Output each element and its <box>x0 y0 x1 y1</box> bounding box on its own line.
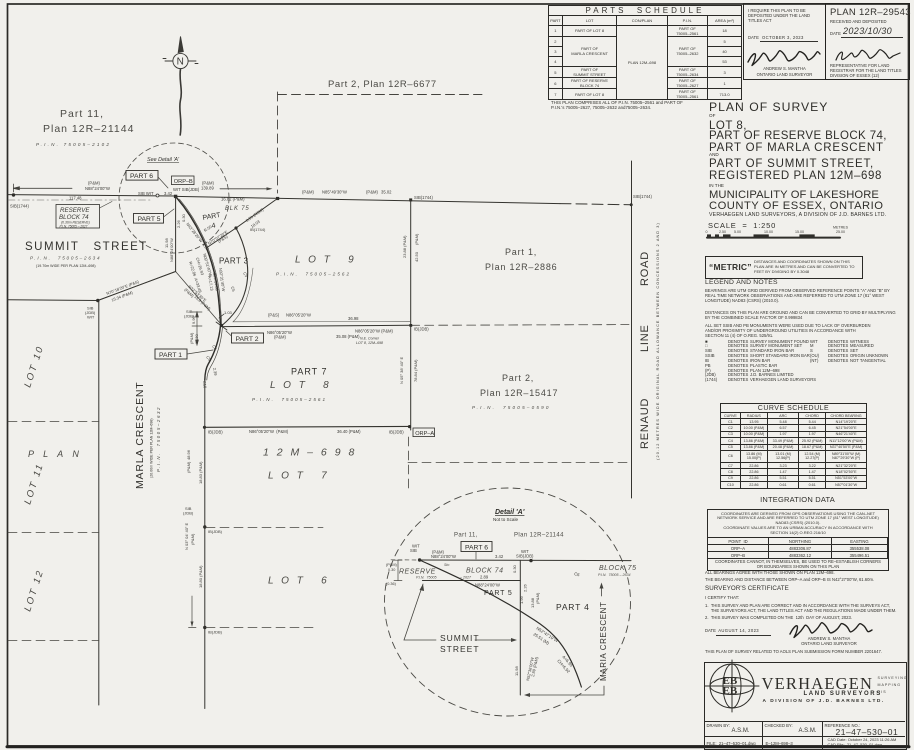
svg-text:MARLA CRESCENT: MARLA CRESCENT <box>134 382 146 489</box>
svg-text:(P&M): (P&M) <box>366 189 378 194</box>
svg-text:PART 4: PART 4 <box>556 602 590 612</box>
svg-text:LINE: LINE <box>639 324 651 352</box>
svg-text:23.88 (P&M): 23.88 (P&M) <box>402 235 407 258</box>
svg-text:SIB(1744): SIB(1744) <box>633 194 652 199</box>
svg-text:L O T 8: L O T 8 <box>270 380 331 391</box>
svg-text:11.30: 11.30 <box>194 334 199 344</box>
svg-text:18.83 (P&M): 18.83 (P&M) <box>198 461 203 484</box>
svg-text:METRES: METRES <box>833 226 849 230</box>
svg-text:PART 7: PART 7 <box>291 367 328 377</box>
svg-text:36.40 (P&M): 36.40 (P&M) <box>337 429 361 434</box>
svg-text:(P&S): (P&S) <box>268 312 280 317</box>
svg-text:1 2 M – 6 9 8: 1 2 M – 6 9 8 <box>263 447 357 459</box>
svg-text:(20.00m WIDE PER PLAN 12M–698): (20.00m WIDE PER PLAN 12M–698) <box>150 418 154 478</box>
svg-text:IB(JDB): IB(JDB) <box>208 629 223 634</box>
svg-text:78.84 (P&M): 78.84 (P&M) <box>413 359 418 382</box>
svg-text:11.98: 11.98 <box>514 666 519 676</box>
svg-text:C5: C5 <box>230 286 237 293</box>
svg-text:IB(1744): IB(1744) <box>250 227 266 232</box>
svg-text:PART 5: PART 5 <box>138 216 161 223</box>
svg-text:1.99: 1.99 <box>519 595 524 604</box>
svg-text:(0.36): (0.36) <box>386 582 397 586</box>
svg-text:PART 6: PART 6 <box>130 173 153 180</box>
svg-text:LOT 11: LOT 11 <box>22 462 46 506</box>
svg-text:SIB(1744): SIB(1744) <box>10 204 29 209</box>
svg-text:(P&M): (P&M) <box>186 461 191 473</box>
svg-text:ORP–B: ORP–B <box>174 179 193 185</box>
svg-text:Part 11,: Part 11, <box>454 533 478 539</box>
svg-text:L O T 6: L O T 6 <box>268 576 329 587</box>
svg-text:3.42: 3.42 <box>495 554 504 559</box>
svg-text:PART 6: PART 6 <box>465 545 488 552</box>
svg-text:N88°24'00"W: N88°24'00"W <box>475 583 500 588</box>
svg-text:SUMMIT: SUMMIT <box>440 633 480 643</box>
svg-text:2.89: 2.89 <box>480 574 489 579</box>
svg-text:P L A N: P L A N <box>28 449 82 459</box>
svg-text:SUMMIT STREET: SUMMIT STREET <box>25 241 148 253</box>
svg-text:2.50: 2.50 <box>719 230 726 234</box>
svg-text:N86°05'20"W (P&M): N86°05'20"W (P&M) <box>249 429 289 434</box>
svg-text:Plan 12R–15417: Plan 12R–15417 <box>480 388 558 398</box>
svg-text:N86°05'20"W: N86°05'20"W <box>286 312 311 317</box>
svg-text:15.00: 15.00 <box>795 230 804 234</box>
svg-text:P.I.N. 75005 – 2634: P.I.N. 75005 – 2634 <box>598 573 631 577</box>
svg-text:139.89: 139.89 <box>201 186 214 191</box>
svg-text:(20.12 METRES WIDE ORIGINAL RO: (20.12 METRES WIDE ORIGINAL ROAD ALLOWAN… <box>656 222 660 460</box>
svg-text:Part 2, Plan 12R–6677: Part 2, Plan 12R–6677 <box>328 79 437 90</box>
svg-text:LOT 10: LOT 10 <box>22 344 46 389</box>
svg-text:(P&M): (P&M) <box>274 335 286 340</box>
svg-text:(P&M): (P&M) <box>414 233 419 245</box>
svg-text:Plan 12R–21144: Plan 12R–21144 <box>43 123 134 135</box>
svg-text:36.98: 36.98 <box>348 316 359 321</box>
svg-text:WIT SIB(JDB): WIT SIB(JDB) <box>173 187 200 192</box>
svg-text:LOT 12: LOT 12 <box>22 568 46 613</box>
svg-text:P.I.N. 75005–2102: P.I.N. 75005–2102 <box>36 142 111 147</box>
svg-text:5.00: 5.00 <box>734 230 741 234</box>
svg-text:25.00: 25.00 <box>836 230 845 234</box>
svg-text:SIB WIT: SIB WIT <box>138 191 154 196</box>
svg-text:(19.70m WIDE PER PLAN 12M–698): (19.70m WIDE PER PLAN 12M–698) <box>36 264 96 268</box>
svg-text:117.48: 117.48 <box>69 196 82 201</box>
svg-text:P.I.N. 75005–2634: P.I.N. 75005–2634 <box>30 255 101 260</box>
svg-text:N88°24'00"W: N88°24'00"W <box>169 238 174 262</box>
svg-text:48.96: 48.96 <box>186 449 191 460</box>
svg-text:RESERVE: RESERVE <box>399 569 436 576</box>
svg-text:N85°49'30"W: N85°49'30"W <box>322 189 347 194</box>
svg-text:L O T 9: L O T 9 <box>295 255 356 266</box>
svg-text:N: N <box>177 57 184 68</box>
svg-text:3.42: 3.42 <box>164 191 173 196</box>
svg-text:Part 11,: Part 11, <box>60 108 104 120</box>
svg-text:C6: C6 <box>574 571 581 577</box>
svg-text:C5: C5 <box>242 271 249 279</box>
svg-text:BLOCK 75: BLOCK 75 <box>599 565 636 572</box>
svg-text:P.I.N. 75005–2562: P.I.N. 75005–2562 <box>276 272 351 277</box>
svg-text:0: 0 <box>706 230 708 234</box>
svg-text:4: 4 <box>211 222 216 230</box>
svg-text:2.26: 2.26 <box>523 583 528 592</box>
svg-text:0.30: 0.30 <box>388 568 395 572</box>
svg-text:(P&M): (P&M) <box>535 592 540 604</box>
svg-text:(JDB): (JDB) <box>183 511 194 516</box>
svg-text:Plan 12R–21144: Plan 12R–21144 <box>514 533 564 539</box>
svg-text:35.08 (P&M): 35.08 (P&M) <box>336 334 360 339</box>
svg-text:42.50: 42.50 <box>414 251 419 262</box>
svg-text:(P&M): (P&M) <box>88 181 100 186</box>
svg-text:10.00: 10.00 <box>764 230 773 234</box>
svg-text:P.I.N. 75005–0590: P.I.N. 75005–0590 <box>472 405 551 410</box>
svg-text:See Detail 'A': See Detail 'A' <box>147 157 180 163</box>
svg-text:IB(JDB): IB(JDB) <box>208 429 223 434</box>
svg-text:0.30: 0.30 <box>181 213 186 222</box>
svg-text:1.03: 1.03 <box>224 310 233 315</box>
svg-text:PART 1: PART 1 <box>159 352 182 359</box>
svg-text:(P&M): (P&M) <box>302 189 314 194</box>
svg-text:Plan 12R–2886: Plan 12R–2886 <box>485 262 557 272</box>
svg-text:P.I.N. 75005 – 2627: P.I.N. 75005 – 2627 <box>60 224 88 228</box>
svg-text:IB(JDB): IB(JDB) <box>208 529 223 534</box>
svg-text:Part 1,: Part 1, <box>505 247 537 257</box>
svg-text:Detail 'A': Detail 'A' <box>495 509 525 516</box>
svg-text:PART 3: PART 3 <box>219 257 249 266</box>
svg-text:LOT 8, 12M–698: LOT 8, 12M–698 <box>356 341 383 345</box>
svg-text:9.99: 9.99 <box>191 315 196 324</box>
svg-text:L O T 7: L O T 7 <box>268 471 329 482</box>
svg-text:SIB: SIB <box>410 548 417 553</box>
svg-text:N88°24'00"W: N88°24'00"W <box>431 554 456 559</box>
svg-text:P.I.N. 75005: P.I.N. 75005 <box>416 576 437 580</box>
svg-text:PART 2: PART 2 <box>236 336 259 343</box>
svg-text:Sto: Sto <box>444 563 449 567</box>
svg-text:N88°24'00"W: N88°24'00"W <box>85 186 110 191</box>
svg-text:(P&M): (P&M) <box>386 563 397 567</box>
svg-text:SIB(JDB): SIB(JDB) <box>516 553 534 558</box>
svg-text:P.I.N. 75005–2561: P.I.N. 75005–2561 <box>252 397 327 402</box>
svg-text:IB(JDB): IB(JDB) <box>414 327 429 332</box>
svg-text:PART: PART <box>202 212 222 222</box>
svg-text:0.30: 0.30 <box>512 564 517 573</box>
svg-text:MARIA CRESCENT: MARIA CRESCENT <box>599 601 608 681</box>
svg-text:C9: C9 <box>205 355 212 363</box>
svg-text:ORP–A: ORP–A <box>415 431 434 437</box>
svg-text:SIB(1744): SIB(1744) <box>414 195 433 200</box>
svg-text:P.I.N. 75005–2632: P.I.N. 75005–2632 <box>156 406 161 472</box>
svg-text:16.82 (P&M): 16.82 (P&M) <box>221 197 245 202</box>
svg-text:2.39: 2.39 <box>212 367 218 376</box>
svg-text:IB(JDB): IB(JDB) <box>389 429 404 434</box>
svg-text:ROAD: ROAD <box>639 251 651 286</box>
svg-text:N86°05'20"W (P&M): N86°05'20"W (P&M) <box>355 329 394 334</box>
svg-text:N 05° 38' 40" E: N 05° 38' 40" E <box>399 357 404 384</box>
svg-text:(P&M): (P&M) <box>190 533 195 545</box>
svg-text:STREET: STREET <box>440 644 480 654</box>
svg-text:RENAUD: RENAUD <box>639 398 651 449</box>
svg-text:WIT: WIT <box>87 315 95 320</box>
svg-text:Part 2,: Part 2, <box>502 373 534 383</box>
svg-text:18.80 (P&M): 18.80 (P&M) <box>198 565 203 588</box>
svg-text:RESERVE: RESERVE <box>60 207 90 214</box>
svg-text:35.02: 35.02 <box>381 189 392 194</box>
svg-text:N 03° 04' 40" E: N 03° 04' 40" E <box>184 523 189 550</box>
svg-text:Not to Scale: Not to Scale <box>493 517 518 522</box>
